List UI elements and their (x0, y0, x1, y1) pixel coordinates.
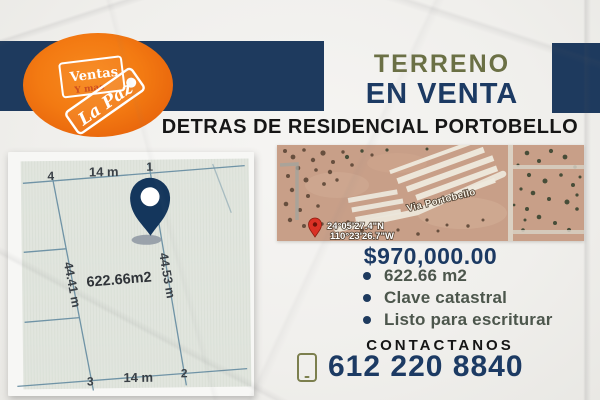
plan-corner-4: 4 (47, 169, 54, 183)
plan-corner-2: 2 (181, 366, 188, 380)
plan-corner-3: 3 (87, 374, 94, 388)
feature-list: 622.66 m2 Clave catastral Listo para esc… (363, 268, 553, 334)
list-item: Listo para escriturar (363, 312, 553, 327)
map-coordinates-line2: 110°23'26.7"W (330, 231, 394, 241)
feature-text: Listo para escriturar (384, 310, 553, 330)
header-title: TERRENO EN VENTA (330, 52, 554, 109)
header-band-right (552, 43, 600, 113)
feature-text: 622.66 m2 (384, 266, 467, 286)
phone-icon (297, 353, 317, 382)
satellite-map-image: Via Portobello 24°05'27.4"N 110°23'26.7"… (277, 145, 584, 241)
title-line1: TERRENO (330, 52, 554, 77)
plan-top-length: 14 m (89, 164, 119, 179)
list-item: Clave catastral (363, 290, 553, 305)
satellite-map: Via Portobello 24°05'27.4"N 110°23'26.7"… (277, 145, 584, 241)
plan-corner-1: 1 (146, 160, 153, 174)
logo: Ventas Y mas La Paz (23, 33, 173, 137)
phone-row: 612 220 8840 (297, 352, 524, 382)
subtitle: DETRAS DE RESIDENCIAL PORTOBELLO (140, 116, 600, 139)
bullet-icon (363, 272, 371, 280)
map-road-vertical (508, 145, 513, 241)
lot-plan-drawing: 4 14 m 1 44.41 m 44.53 m 622.66m2 3 14 m… (8, 152, 254, 396)
title-line2: EN VENTA (330, 80, 554, 109)
feature-text: Clave catastral (384, 288, 507, 308)
list-item: 622.66 m2 (363, 268, 553, 283)
bullet-icon (363, 316, 371, 324)
plan-bottom-length: 14 m (123, 370, 153, 385)
bullet-icon (363, 294, 371, 302)
flyer: Ventas Y mas La Paz TERRENO EN VENTA DET… (0, 0, 600, 400)
logo-tags-icon: Ventas Y mas La Paz (23, 33, 173, 137)
lot-plan: 4 14 m 1 44.41 m 44.53 m 622.66m2 3 14 m… (8, 152, 254, 396)
phone-number: 612 220 8840 (328, 352, 524, 382)
